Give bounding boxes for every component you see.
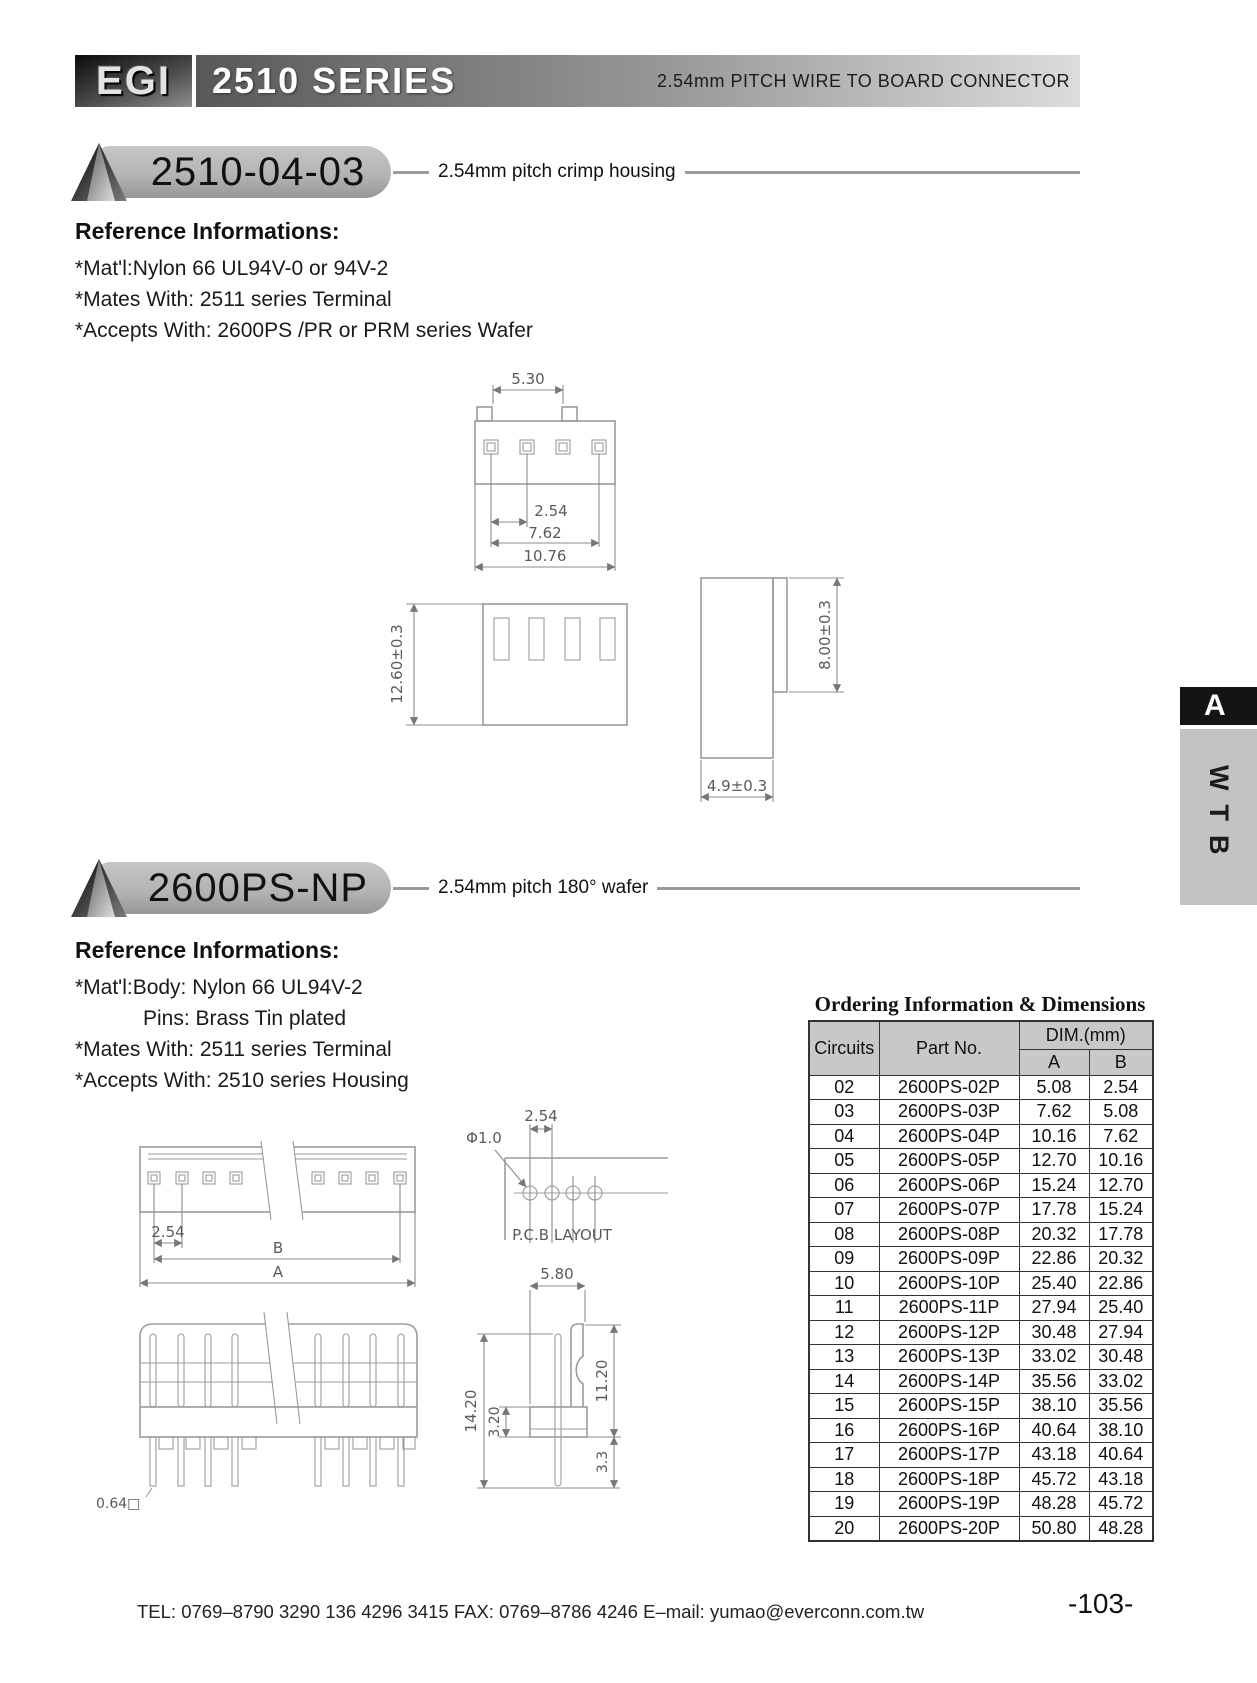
cell-part-no: 2600PS-11P xyxy=(879,1296,1019,1321)
cell-dim-a: 22.86 xyxy=(1019,1247,1089,1272)
brand-logo-text: EGI xyxy=(96,59,171,104)
col-header-part: Part No. xyxy=(879,1021,1019,1075)
cell-circuits: 16 xyxy=(809,1418,879,1443)
ordering-table: Circuits Part No. DIM.(mm) A B 02 2600PS… xyxy=(808,1020,1154,1542)
cell-circuits: 09 xyxy=(809,1247,879,1272)
dim-pitch: 2.54 xyxy=(151,1223,184,1241)
rule xyxy=(685,171,1080,174)
cell-circuits: 08 xyxy=(809,1222,879,1247)
cell-dim-b: 10.16 xyxy=(1089,1149,1153,1174)
section2-tagline: 2.54mm pitch 180° wafer xyxy=(438,877,648,899)
dim-height: 12.60±0.3 xyxy=(388,624,406,703)
cell-part-no: 2600PS-16P xyxy=(879,1418,1019,1443)
reference-heading: Reference Informations: xyxy=(75,937,409,964)
section1-badge-triangle-icon xyxy=(71,142,129,202)
cell-part-no: 2600PS-19P xyxy=(879,1492,1019,1517)
cell-dim-a: 5.08 xyxy=(1019,1075,1089,1100)
col-header-b: B xyxy=(1089,1049,1153,1075)
wafer-side-view: 5.80 14.20 3.20 11.20 3.3 xyxy=(462,1265,621,1488)
cell-circuits: 12 xyxy=(809,1320,879,1345)
section2-reference: Reference Informations: *Mat'l:Body: Nyl… xyxy=(75,937,409,1096)
wafer-top-view: 2.54 B A xyxy=(140,1141,415,1287)
cell-dim-b: 43.18 xyxy=(1089,1467,1153,1492)
table-row: 07 2600PS-07P 17.78 15.24 xyxy=(809,1198,1153,1223)
cell-dim-a: 25.40 xyxy=(1019,1271,1089,1296)
cell-part-no: 2600PS-08P xyxy=(879,1222,1019,1247)
cell-circuits: 04 xyxy=(809,1124,879,1149)
cell-dim-a: 30.48 xyxy=(1019,1320,1089,1345)
cell-dim-b: 20.32 xyxy=(1089,1247,1153,1272)
cell-circuits: 18 xyxy=(809,1467,879,1492)
cell-part-no: 2600PS-09P xyxy=(879,1247,1019,1272)
reference-line: *Mat'l:Nylon 66 UL94V-0 or 94V-2 xyxy=(75,253,533,284)
rule xyxy=(393,171,429,174)
housing-front-view: 12.60±0.3 xyxy=(388,604,627,725)
cell-circuits: 07 xyxy=(809,1198,879,1223)
cell-part-no: 2600PS-06P xyxy=(879,1173,1019,1198)
section1-reference: Reference Informations: *Mat'l:Nylon 66 … xyxy=(75,218,533,346)
reference-line: *Accepts With: 2510 series Housing xyxy=(75,1065,409,1096)
pcb-layout-label: P.C.B LAYOUT xyxy=(512,1226,613,1244)
col-header-a: A xyxy=(1019,1049,1089,1075)
table-row: 11 2600PS-11P 27.94 25.40 xyxy=(809,1296,1153,1321)
table-title: Ordering Information & Dimensions xyxy=(804,992,1156,1017)
page-category-tab: WTB xyxy=(1180,729,1257,905)
dim-side-height: 8.00±0.3 xyxy=(816,600,834,670)
section2-badge-label: 2600PS-NP xyxy=(118,866,368,911)
reference-line: *Mates With: 2511 series Terminal xyxy=(75,1034,409,1065)
table-row: 08 2600PS-08P 20.32 17.78 xyxy=(809,1222,1153,1247)
page-category-label: WTB xyxy=(1203,765,1234,905)
cell-circuits: 15 xyxy=(809,1394,879,1419)
section2-badge: 2600PS-NP xyxy=(95,862,391,914)
cell-dim-b: 12.70 xyxy=(1089,1173,1153,1198)
cell-part-no: 2600PS-13P xyxy=(879,1345,1019,1370)
cell-dim-b: 48.28 xyxy=(1089,1516,1153,1541)
cell-part-no: 2600PS-05P xyxy=(879,1149,1019,1174)
pcb-layout-view: 2.54 Φ1.0 P.C.B LAYOUT xyxy=(466,1107,668,1244)
cell-dim-a: 15.24 xyxy=(1019,1173,1089,1198)
table-row: 20 2600PS-20P 50.80 48.28 xyxy=(809,1516,1153,1541)
cell-part-no: 2600PS-12P xyxy=(879,1320,1019,1345)
cell-part-no: 2600PS-20P xyxy=(879,1516,1019,1541)
cell-dim-b: 30.48 xyxy=(1089,1345,1153,1370)
cell-circuits: 02 xyxy=(809,1075,879,1100)
cell-dim-b: 2.54 xyxy=(1089,1075,1153,1100)
header-bar: 2510 SERIES 2.54mm PITCH WIRE TO BOARD C… xyxy=(196,55,1080,107)
brand-logo: EGI xyxy=(75,55,192,107)
footer-contact: TEL: 0769–8790 3290 136 4296 3415 FAX: 0… xyxy=(137,1601,924,1623)
cell-dim-b: 7.62 xyxy=(1089,1124,1153,1149)
dim-wall-height: 11.20 xyxy=(593,1360,611,1403)
reference-line: *Mates With: 2511 series Terminal xyxy=(75,284,533,315)
cell-dim-a: 48.28 xyxy=(1019,1492,1089,1517)
table-row: 03 2600PS-03P 7.62 5.08 xyxy=(809,1100,1153,1125)
table-row: 02 2600PS-02P 5.08 2.54 xyxy=(809,1075,1153,1100)
cell-part-no: 2600PS-15P xyxy=(879,1394,1019,1419)
cell-part-no: 2600PS-10P xyxy=(879,1271,1019,1296)
cell-circuits: 06 xyxy=(809,1173,879,1198)
cell-part-no: 2600PS-14P xyxy=(879,1369,1019,1394)
cell-circuits: 14 xyxy=(809,1369,879,1394)
cell-dim-b: 22.86 xyxy=(1089,1271,1153,1296)
table-row: 18 2600PS-18P 45.72 43.18 xyxy=(809,1467,1153,1492)
cell-circuits: 17 xyxy=(809,1443,879,1468)
section2-badge-triangle-icon xyxy=(71,858,129,918)
cell-circuits: 11 xyxy=(809,1296,879,1321)
cell-part-no: 2600PS-03P xyxy=(879,1100,1019,1125)
dim-total-height: 14.20 xyxy=(462,1390,480,1433)
datasheet-page: EGI 2510 SERIES 2.54mm PITCH WIRE TO BOA… xyxy=(0,0,1257,1683)
page-index-letter: A xyxy=(1204,689,1226,723)
cell-dim-b: 33.02 xyxy=(1089,1369,1153,1394)
table-row: 09 2600PS-09P 22.86 20.32 xyxy=(809,1247,1153,1272)
cell-dim-a: 43.18 xyxy=(1019,1443,1089,1468)
cell-dim-a: 10.16 xyxy=(1019,1124,1089,1149)
cell-dim-a: 33.02 xyxy=(1019,1345,1089,1370)
table-row: 12 2600PS-12P 30.48 27.94 xyxy=(809,1320,1153,1345)
cell-part-no: 2600PS-17P xyxy=(879,1443,1019,1468)
dim-side-width: 5.80 xyxy=(540,1265,573,1283)
dim-b-label: B xyxy=(273,1239,283,1257)
dim-overall-width: 10.76 xyxy=(524,547,567,565)
cell-dim-a: 7.62 xyxy=(1019,1100,1089,1125)
table-row: 19 2600PS-19P 48.28 45.72 xyxy=(809,1492,1153,1517)
series-title: 2510 SERIES xyxy=(196,60,456,102)
dim-body-height: 3.20 xyxy=(487,1406,503,1437)
page-number: -103- xyxy=(1068,1588,1133,1620)
dim-hole-dia: Φ1.0 xyxy=(466,1129,502,1147)
cell-circuits: 05 xyxy=(809,1149,879,1174)
table-row: 10 2600PS-10P 25.40 22.86 xyxy=(809,1271,1153,1296)
table-row: 16 2600PS-16P 40.64 38.10 xyxy=(809,1418,1153,1443)
dim-pitch: 2.54 xyxy=(534,502,567,520)
dim-pcb-pitch: 2.54 xyxy=(524,1107,557,1125)
table-row: 13 2600PS-13P 33.02 30.48 xyxy=(809,1345,1153,1370)
cell-dim-b: 25.40 xyxy=(1089,1296,1153,1321)
reference-heading: Reference Informations: xyxy=(75,218,533,245)
housing-side-view: 8.00±0.3 4.9±0.3 xyxy=(701,578,844,802)
cell-dim-a: 17.78 xyxy=(1019,1198,1089,1223)
cell-dim-b: 40.64 xyxy=(1089,1443,1153,1468)
dim-depth: 4.9±0.3 xyxy=(707,777,767,795)
rule xyxy=(657,887,1080,890)
table-row: 04 2600PS-04P 10.16 7.62 xyxy=(809,1124,1153,1149)
cell-dim-a: 35.56 xyxy=(1019,1369,1089,1394)
cell-dim-b: 5.08 xyxy=(1089,1100,1153,1125)
cell-dim-b: 15.24 xyxy=(1089,1198,1153,1223)
section1-tagline: 2.54mm pitch crimp housing xyxy=(438,161,676,183)
cell-dim-a: 45.72 xyxy=(1019,1467,1089,1492)
table-row: 05 2600PS-05P 12.70 10.16 xyxy=(809,1149,1153,1174)
section1-badge-label: 2510-04-03 xyxy=(121,150,366,195)
table-row: 06 2600PS-06P 15.24 12.70 xyxy=(809,1173,1153,1198)
cell-part-no: 2600PS-18P xyxy=(879,1467,1019,1492)
section1-badge: 2510-04-03 xyxy=(95,146,391,198)
dim-pin-below: 3.3 xyxy=(595,1451,611,1473)
table-row: 17 2600PS-17P 43.18 40.64 xyxy=(809,1443,1153,1468)
housing-top-view: 5.30 2.54 7.62 10.76 xyxy=(475,370,615,571)
dim-pin-square: 0.64□ xyxy=(96,1496,140,1512)
cell-dim-a: 50.80 xyxy=(1019,1516,1089,1541)
wafer-front-view: 0.64□ xyxy=(96,1312,417,1512)
col-header-circuits: Circuits xyxy=(809,1021,879,1075)
cell-dim-a: 20.32 xyxy=(1019,1222,1089,1247)
cell-dim-b: 38.10 xyxy=(1089,1418,1153,1443)
section2-tagline-row: 2.54mm pitch 180° wafer xyxy=(393,876,1080,900)
dim-top-width: 5.30 xyxy=(511,370,544,388)
cell-part-no: 2600PS-02P xyxy=(879,1075,1019,1100)
cell-dim-b: 17.78 xyxy=(1089,1222,1153,1247)
dim-row-span: 7.62 xyxy=(528,524,561,542)
cell-dim-a: 38.10 xyxy=(1019,1394,1089,1419)
table-row: 14 2600PS-14P 35.56 33.02 xyxy=(809,1369,1153,1394)
cell-dim-b: 27.94 xyxy=(1089,1320,1153,1345)
cell-part-no: 2600PS-07P xyxy=(879,1198,1019,1223)
cell-circuits: 10 xyxy=(809,1271,879,1296)
cell-circuits: 20 xyxy=(809,1516,879,1541)
cell-dim-a: 12.70 xyxy=(1019,1149,1089,1174)
reference-line: *Mat'l:Body: Nylon 66 UL94V-2 xyxy=(75,972,409,1003)
cell-dim-b: 45.72 xyxy=(1089,1492,1153,1517)
wafer-drawing: 2.54 B A 2.54 Φ1.0 P.C.B LAYOUT xyxy=(90,1105,675,1517)
cell-dim-a: 40.64 xyxy=(1019,1418,1089,1443)
cell-circuits: 13 xyxy=(809,1345,879,1370)
cell-dim-a: 27.94 xyxy=(1019,1296,1089,1321)
col-header-dim: DIM.(mm) xyxy=(1019,1021,1153,1049)
cell-dim-b: 35.56 xyxy=(1089,1394,1153,1419)
cell-part-no: 2600PS-04P xyxy=(879,1124,1019,1149)
table-row: 15 2600PS-15P 38.10 35.56 xyxy=(809,1394,1153,1419)
housing-drawing: 5.30 2.54 7.62 10.76 12.60±0.3 xyxy=(370,340,890,806)
header-subtitle: 2.54mm PITCH WIRE TO BOARD CONNECTOR xyxy=(657,71,1080,92)
rule xyxy=(393,887,429,890)
section1-tagline-row: 2.54mm pitch crimp housing xyxy=(393,160,1080,184)
reference-line: Pins: Brass Tin plated xyxy=(75,1003,409,1034)
page-index-tab: A xyxy=(1180,687,1257,725)
cell-circuits: 03 xyxy=(809,1100,879,1125)
cell-circuits: 19 xyxy=(809,1492,879,1517)
dim-a-label: A xyxy=(273,1263,284,1281)
